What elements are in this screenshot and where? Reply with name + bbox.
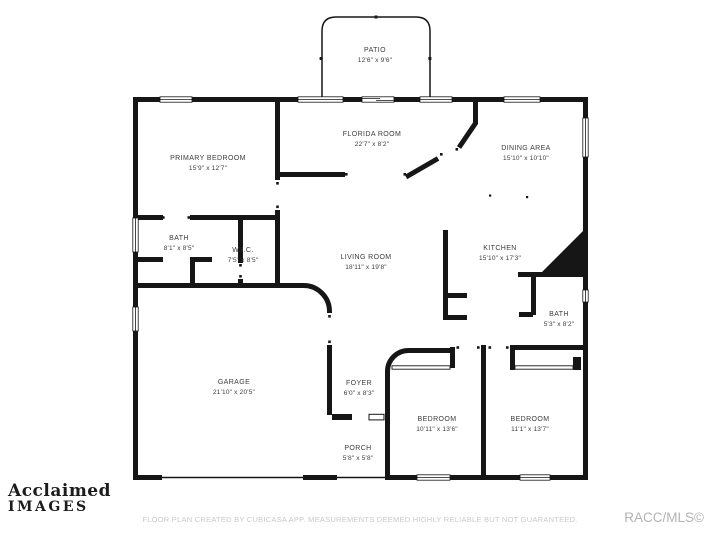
svg-text:6'0" x 8'3": 6'0" x 8'3" xyxy=(344,390,375,397)
room-label-bath-primary: BATH 8'1" x 8'5" xyxy=(164,235,195,252)
svg-text:PRIMARY BEDROOM: PRIMARY BEDROOM xyxy=(170,155,246,162)
room-labels: PATIO 12'6" x 9'6" FLORIDA ROOM 22'7" x … xyxy=(164,47,575,462)
window xyxy=(520,475,550,480)
closet-slider xyxy=(515,366,573,369)
sliding-door xyxy=(362,97,394,102)
svg-text:BATH: BATH xyxy=(169,235,189,242)
room-label-patio: PATIO 12'6" x 9'6" xyxy=(358,47,393,64)
svg-text:5'3" x 8'2": 5'3" x 8'2" xyxy=(544,321,575,328)
logo-line-2: IMAGES xyxy=(8,500,111,515)
svg-text:8'1" x 8'5": 8'1" x 8'5" xyxy=(164,245,195,252)
svg-text:5'8" x 5'8": 5'8" x 5'8" xyxy=(343,455,374,462)
svg-text:DINING AREA: DINING AREA xyxy=(501,145,551,152)
window xyxy=(504,97,540,102)
room-label-garage: GARAGE 21'10" x 20'5" xyxy=(213,379,256,396)
window xyxy=(583,118,588,157)
window xyxy=(133,218,138,252)
floor-plan-drawing: PATIO 12'6" x 9'6" FLORIDA ROOM 22'7" x … xyxy=(0,0,720,540)
window xyxy=(417,475,450,480)
room-label-dining-area: DINING AREA 15'10" x 10'10" xyxy=(501,145,551,162)
opening-ticks xyxy=(162,148,528,349)
svg-text:15'9" x 12'7": 15'9" x 12'7" xyxy=(189,165,228,172)
svg-text:15'10" x 10'10": 15'10" x 10'10" xyxy=(503,155,549,162)
svg-text:12'6" x 9'6": 12'6" x 9'6" xyxy=(358,57,393,64)
logo-line-1: Acclaimed xyxy=(8,482,111,500)
svg-text:22'7" x 8'2": 22'7" x 8'2" xyxy=(355,141,390,148)
svg-text:11'1" x 13'7": 11'1" x 13'7" xyxy=(511,426,549,433)
room-label-living-room: LIVING ROOM 18'11" x 19'8" xyxy=(340,254,391,271)
room-label-bedroom-center: BEDROOM 10'11" x 13'6" xyxy=(416,416,458,433)
svg-text:BATH: BATH xyxy=(549,311,569,318)
room-label-foyer: FOYER 6'0" x 8'3" xyxy=(344,380,375,397)
svg-text:10'11" x 13'6": 10'11" x 13'6" xyxy=(416,426,458,433)
svg-text:18'11" x 19'8": 18'11" x 19'8" xyxy=(345,264,387,271)
svg-text:KITCHEN: KITCHEN xyxy=(483,245,517,252)
room-label-florida-room: FLORIDA ROOM 22'7" x 8'2" xyxy=(343,131,401,148)
svg-text:GARAGE: GARAGE xyxy=(218,379,250,386)
svg-text:BEDROOM: BEDROOM xyxy=(511,416,550,423)
garage-door xyxy=(162,475,303,481)
window xyxy=(160,97,192,102)
room-label-wic: W.I.C. 7'5" x 8'5" xyxy=(228,247,259,264)
svg-text:FOYER: FOYER xyxy=(346,380,372,387)
room-label-kitchen: KITCHEN 15'10" x 17'3" xyxy=(479,245,522,262)
svg-text:PATIO: PATIO xyxy=(364,47,386,54)
svg-text:LIVING ROOM: LIVING ROOM xyxy=(340,254,391,261)
svg-text:W.I.C.: W.I.C. xyxy=(232,247,253,254)
front-door xyxy=(369,414,384,420)
room-label-bedroom-right: BEDROOM 11'1" x 13'7" xyxy=(511,416,550,433)
floor-plan-page: PATIO 12'6" x 9'6" FLORIDA ROOM 22'7" x … xyxy=(0,0,720,540)
svg-text:FLORIDA ROOM: FLORIDA ROOM xyxy=(343,131,401,138)
room-label-bath-hall: BATH 5'3" x 8'2" xyxy=(544,311,575,328)
room-label-primary-bedroom: PRIMARY BEDROOM 15'9" x 12'7" xyxy=(170,155,246,172)
svg-text:15'10" x 17'3": 15'10" x 17'3" xyxy=(479,255,522,262)
disclaimer-text: FLOOR PLAN CREATED BY CUBICASA APP. MEAS… xyxy=(0,515,720,524)
window xyxy=(298,97,343,102)
window xyxy=(420,97,452,102)
closet-slider xyxy=(392,366,450,369)
svg-text:21'10" x 20'5": 21'10" x 20'5" xyxy=(213,389,256,396)
window xyxy=(583,290,588,302)
window xyxy=(133,307,138,331)
mls-credit-text: RACC/MLS© xyxy=(624,510,704,525)
porch-screen xyxy=(337,475,385,481)
svg-text:BEDROOM: BEDROOM xyxy=(418,416,457,423)
room-label-porch: PORCH 5'8" x 5'8" xyxy=(343,445,374,462)
acclaimed-images-logo: Acclaimed IMAGES xyxy=(8,482,111,515)
svg-text:PORCH: PORCH xyxy=(344,445,371,452)
svg-text:7'5" x 8'5": 7'5" x 8'5" xyxy=(228,257,259,264)
